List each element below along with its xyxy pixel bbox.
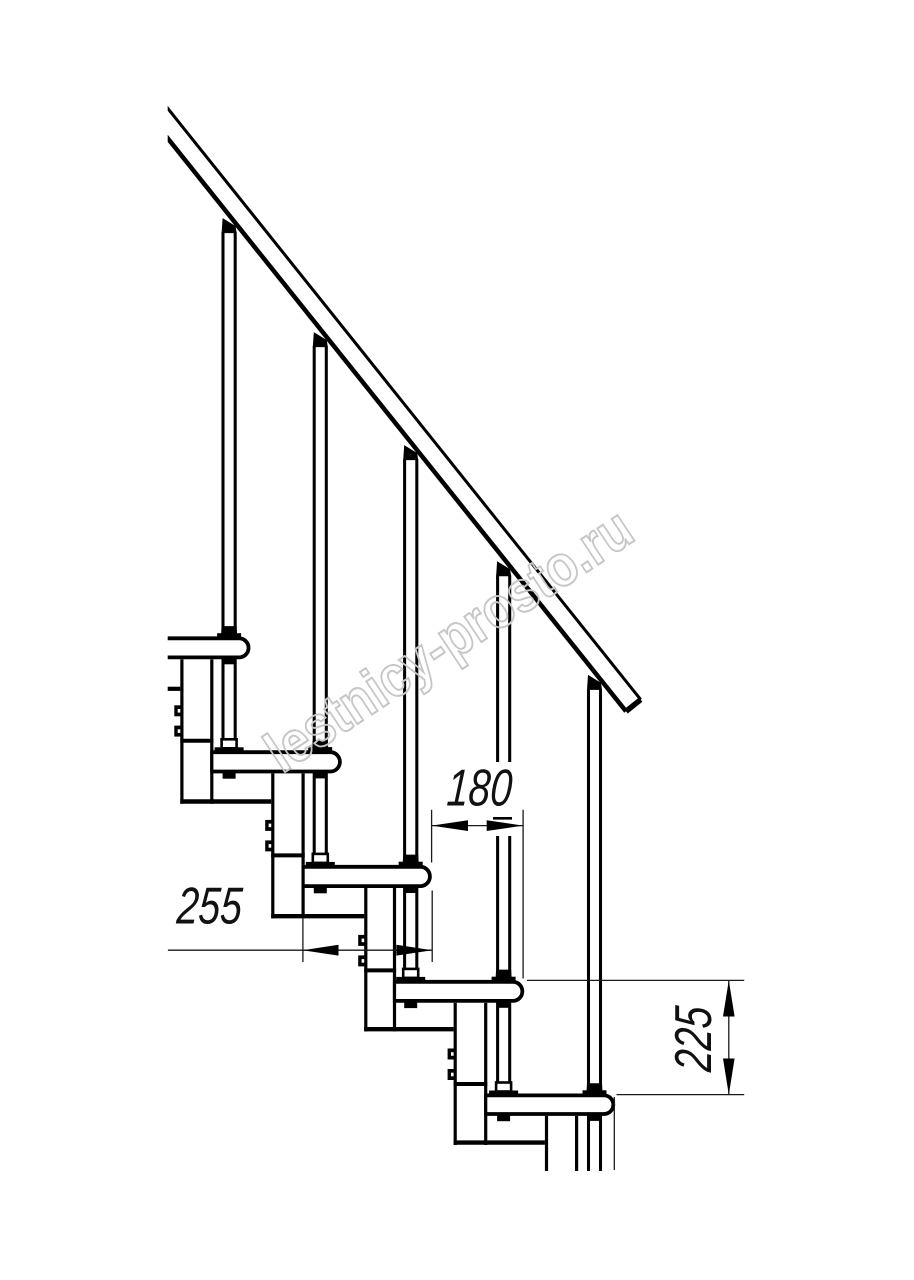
svg-text:255: 255 <box>174 876 244 935</box>
svg-text:225: 225 <box>664 1004 723 1074</box>
svg-text:180: 180 <box>445 758 514 817</box>
